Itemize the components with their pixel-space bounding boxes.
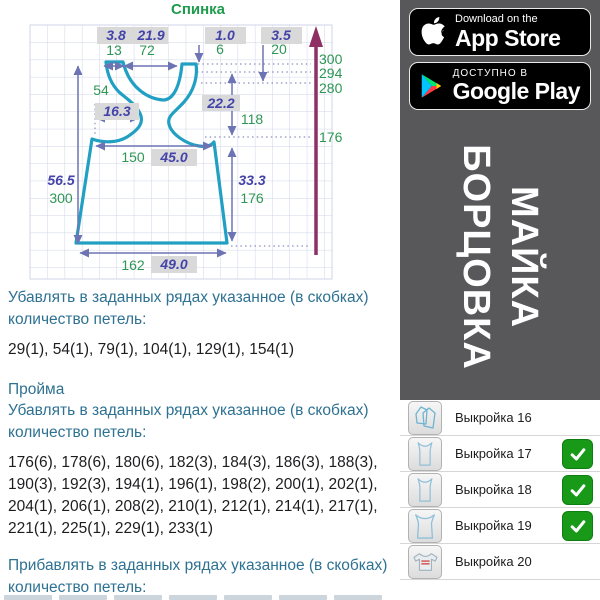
dim-length-rows: 300 [49,190,73,206]
pattern-label: Выкройка 19 [455,518,532,533]
checkmark-icon [562,475,593,505]
appstore-tagline: Download on the [455,14,560,26]
pattern-label: Выкройка 16 [455,410,532,425]
pattern-thumbnail [408,509,442,543]
dim-length-cm: 56.5 [47,172,74,188]
googleplay-name: Google Play [453,79,580,103]
pattern-list: Выкройка 16 Выкройка 17 Выкройка 18 [400,400,600,600]
dim-strap-rows: 13 [106,42,122,58]
googleplay-badge[interactable]: ДОСТУПНО В Google Play [409,62,591,110]
increase-instruction: Прибавлять в заданных рядах указанное (в… [8,555,394,598]
dim-drop1-rows: 6 [216,41,224,57]
pattern-label: Выкройка 17 [455,446,532,461]
banner-line-1: МАЙКА [500,144,548,370]
pattern-thumbnail [408,401,442,435]
axis-row-176: 176 [319,129,343,145]
tank-top-icon [413,440,437,468]
dim-cross-rows: 118 [241,111,264,127]
tank-top-icon [413,476,437,504]
dim-neck-cm: 21.9 [136,27,164,43]
pattern-row-16[interactable]: Выкройка 16 [400,400,600,436]
pattern-label: Выкройка 20 [455,554,532,569]
appstore-badge[interactable]: Download on the App Store [409,8,591,56]
pattern-row-18[interactable]: Выкройка 18 [400,472,600,508]
decrease-instruction-1: Убавлять в заданных рядах указанное (в с… [8,287,394,330]
dim-strap-cm: 3.8 [106,27,126,43]
axis-row-280: 280 [319,80,343,96]
decrease-rows-2: 176(6), 178(6), 180(6), 182(3), 184(3), … [8,452,394,540]
dim-side-cm: 33.3 [238,172,265,188]
pattern-thumbnail [408,545,442,579]
pattern-diagram: Спинка [0,0,400,284]
checkmark-icon [562,439,593,469]
app-promo-screenshot: Спинка [0,0,600,600]
dim-waist-rows: 150 [121,149,145,165]
dim-cross-cm: 22.2 [206,95,234,111]
decrease-instruction-2: Убавлять в заданных рядах указанное (в с… [8,400,394,443]
pattern-thumbnail [408,473,442,507]
dim-hem-rows: 162 [121,257,145,273]
pattern-row-19[interactable]: Выкройка 19 [400,508,600,544]
google-play-icon [420,70,444,102]
checkmark-icon [562,511,593,541]
pattern-thumbnail [408,437,442,471]
dim-hem-cm: 49.0 [159,256,187,272]
stacked-patterns-icon [412,405,438,431]
armhole-heading: Пройма [8,379,394,401]
cutoff-label-stubs [4,595,396,600]
pattern-row-20[interactable]: Выкройка 20 [400,544,600,580]
dim-drop2-rows: 20 [271,41,287,57]
dim-waist-cm: 45.0 [159,149,187,165]
promo-panel: Download on the App Store ДОСТУПНО В Goo… [400,0,600,400]
dim-armhole-cm: 16.3 [103,103,130,119]
dim-neck-rows: 72 [139,42,155,58]
decrease-rows-1: 29(1), 54(1), 79(1), 104(1), 129(1), 154… [8,339,394,361]
pattern-row-17[interactable]: Выкройка 17 [400,436,600,472]
app-title-banner: МАЙКА БОРЦОВКА [400,113,600,400]
tshirt-icon [411,550,439,574]
dim-side-rows: 176 [240,190,264,206]
banner-line-2: БОРЦОВКА [452,144,500,370]
wide-tank-top-icon [412,512,438,540]
axis-row-294: 294 [319,65,343,81]
appstore-name: App Store [455,26,560,50]
dim-armhole-rows: 54 [93,82,109,98]
apple-icon [420,17,446,47]
diagram-title: Спинка [171,1,226,18]
pattern-label: Выкройка 18 [455,482,532,497]
